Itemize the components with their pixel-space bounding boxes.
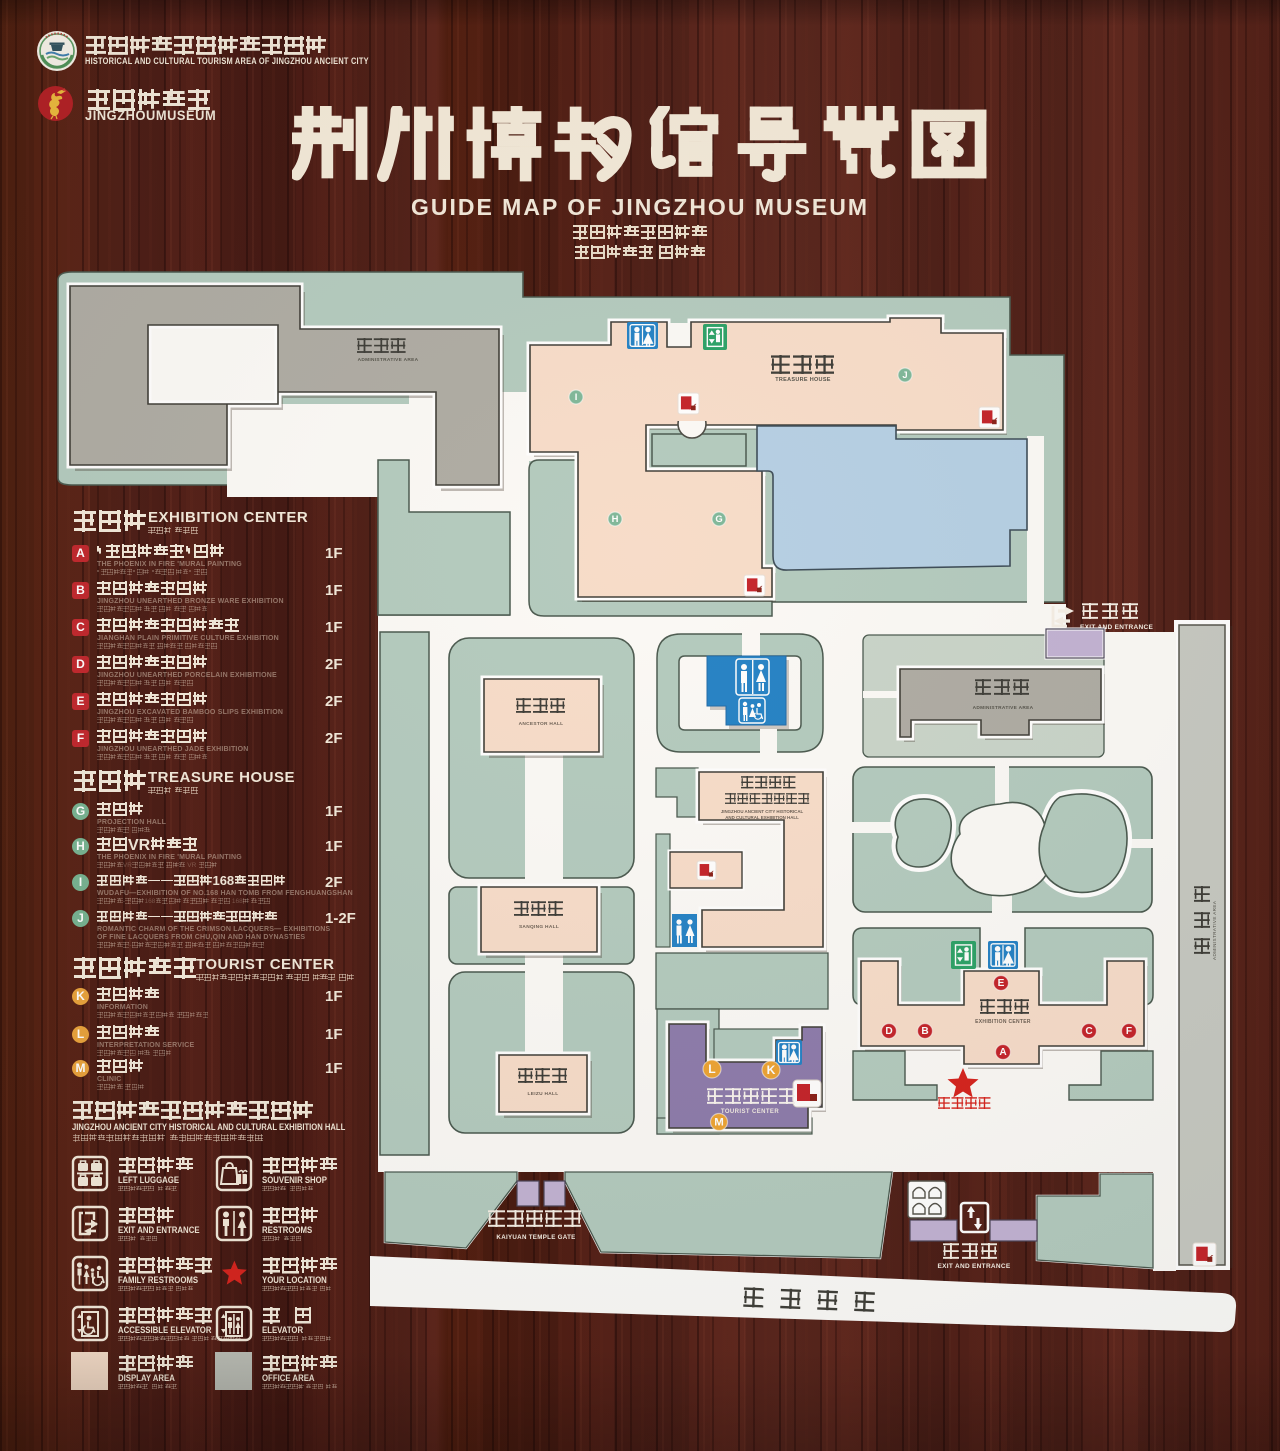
svg-text:EXHIBITION CENTER: EXHIBITION CENTER bbox=[975, 1019, 1031, 1025]
svg-text:SANQING HALL: SANQING HALL bbox=[519, 924, 559, 930]
svg-text:J: J bbox=[902, 370, 907, 381]
svg-text:K: K bbox=[767, 1063, 776, 1077]
svg-text:H: H bbox=[612, 514, 619, 525]
svg-text:TREASURE HOUSE: TREASURE HOUSE bbox=[775, 377, 831, 383]
svg-text:M: M bbox=[714, 1117, 724, 1129]
svg-text:LEIZU HALL: LEIZU HALL bbox=[528, 1091, 559, 1097]
svg-text:AND CULTURAL EXHIBITION HALL: AND CULTURAL EXHIBITION HALL bbox=[725, 815, 799, 820]
svg-text:I: I bbox=[575, 392, 578, 403]
svg-text:G: G bbox=[715, 514, 722, 525]
svg-text:ADMINISTRATIVE AREA: ADMINISTRATIVE AREA bbox=[973, 705, 1034, 711]
svg-text:C: C bbox=[1085, 1026, 1093, 1037]
svg-text:A: A bbox=[999, 1047, 1007, 1058]
svg-text:TOURIST CENTER: TOURIST CENTER bbox=[721, 1109, 779, 1115]
svg-text:KAIYUAN TEMPLE GATE: KAIYUAN TEMPLE GATE bbox=[496, 1234, 575, 1241]
svg-text:L: L bbox=[708, 1062, 716, 1076]
svg-text:F: F bbox=[1126, 1026, 1132, 1037]
svg-text:B: B bbox=[921, 1026, 928, 1037]
svg-text:E: E bbox=[998, 978, 1005, 989]
svg-text:EXIT AND ENTRANCE: EXIT AND ENTRANCE bbox=[937, 1263, 1010, 1270]
svg-text:ANCESTOR HALL: ANCESTOR HALL bbox=[519, 721, 564, 727]
svg-text:ADMINISTRATIVE AREA: ADMINISTRATIVE AREA bbox=[358, 357, 419, 363]
svg-text:ADMINISTRATIVE AREA: ADMINISTRATIVE AREA bbox=[1212, 900, 1217, 960]
svg-text:D: D bbox=[885, 1026, 892, 1037]
svg-text:JINGZHOU ANCIENT CITY HISTORIC: JINGZHOU ANCIENT CITY HISTORICAL bbox=[721, 809, 804, 814]
